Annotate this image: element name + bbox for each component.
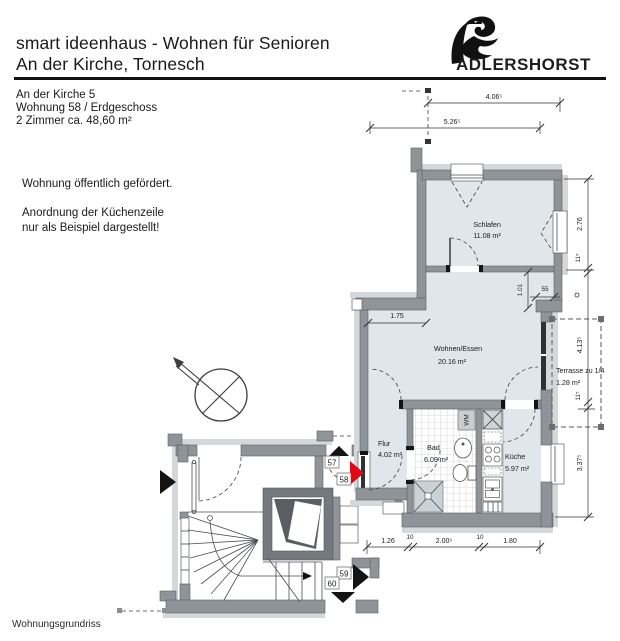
terrace-door <box>541 322 546 354</box>
dim-bottom-flur: 1.26 <box>381 538 395 545</box>
label-bad-area: 6.09 m² <box>424 455 449 464</box>
dim-right-wall2: 11⁵ <box>575 391 582 401</box>
dim-right-sleep: 2.76 <box>577 217 584 231</box>
wc <box>453 465 467 482</box>
label-schlafen-area: 11.08 m² <box>473 231 501 240</box>
room-kueche-floor <box>503 409 541 513</box>
dim-bottom-bad: 2.00⁵ <box>436 538 453 545</box>
wm-label: WM <box>464 414 471 425</box>
label-kueche-area: 5.97 m² <box>505 464 530 473</box>
unit-57-label: 57 <box>328 459 337 468</box>
floorplan-drawing: WM <box>0 0 620 641</box>
window-kueche-east <box>551 444 564 484</box>
label-terrasse-area: 1.28 m² <box>556 378 581 387</box>
room-wohnen-floor <box>368 310 541 400</box>
north-arrow-icon <box>173 357 247 421</box>
label-wohnen-area: 20.16 m² <box>438 357 467 366</box>
label-flur: Flur <box>378 439 391 448</box>
stove <box>483 444 502 466</box>
dim-top-outer: 5.26⁵ <box>444 119 461 126</box>
label-terrasse: Terrasse zu 1/4 <box>556 366 604 375</box>
window-schlafen-east <box>553 211 567 253</box>
dim-top-inner: 4.06⁵ <box>486 94 503 101</box>
stairwell <box>117 431 379 618</box>
window-wohnen-west <box>352 299 362 310</box>
unit-60-arrow-icon <box>331 592 355 603</box>
dim-wohnen-width: 1.75 <box>390 313 404 320</box>
label-wohnen: Wohnen/Essen <box>434 344 482 353</box>
dim-niche-height: 1.01 <box>517 283 524 296</box>
label-bad: Bad <box>427 443 440 452</box>
label-schlafen: Schlafen <box>473 220 501 229</box>
dim-bottom-wall1: 10 <box>406 534 414 541</box>
floorplan-page: smart ideenhaus - Wohnen für Senioren An… <box>0 0 620 641</box>
label-kueche: Küche <box>505 452 525 461</box>
kueche-fixtures <box>482 409 503 513</box>
apartment-58: WM <box>350 148 568 533</box>
label-flur-area: 4.02 m² <box>378 450 403 459</box>
dim-bottom-wall2: 10 <box>476 534 484 541</box>
entrance-cabinet <box>383 502 404 514</box>
elevator <box>263 488 333 560</box>
window-schlafen-north <box>451 164 483 181</box>
dim-right-terrace: 4.13⁵ <box>577 337 584 354</box>
dim-niche-width: 55 <box>541 286 549 293</box>
dim-right-wall1: 11⁵ <box>575 253 582 263</box>
unit-60-label: 60 <box>328 580 337 589</box>
dim-bottom-kueche: 1.80 <box>503 538 517 545</box>
unit-58-label: 58 <box>340 476 349 485</box>
unit-57-arrow-icon <box>329 446 349 456</box>
dim-right-lower: 3.37⁵ <box>577 455 584 472</box>
washbasin <box>455 438 472 458</box>
unit-59-label: 59 <box>340 570 349 579</box>
